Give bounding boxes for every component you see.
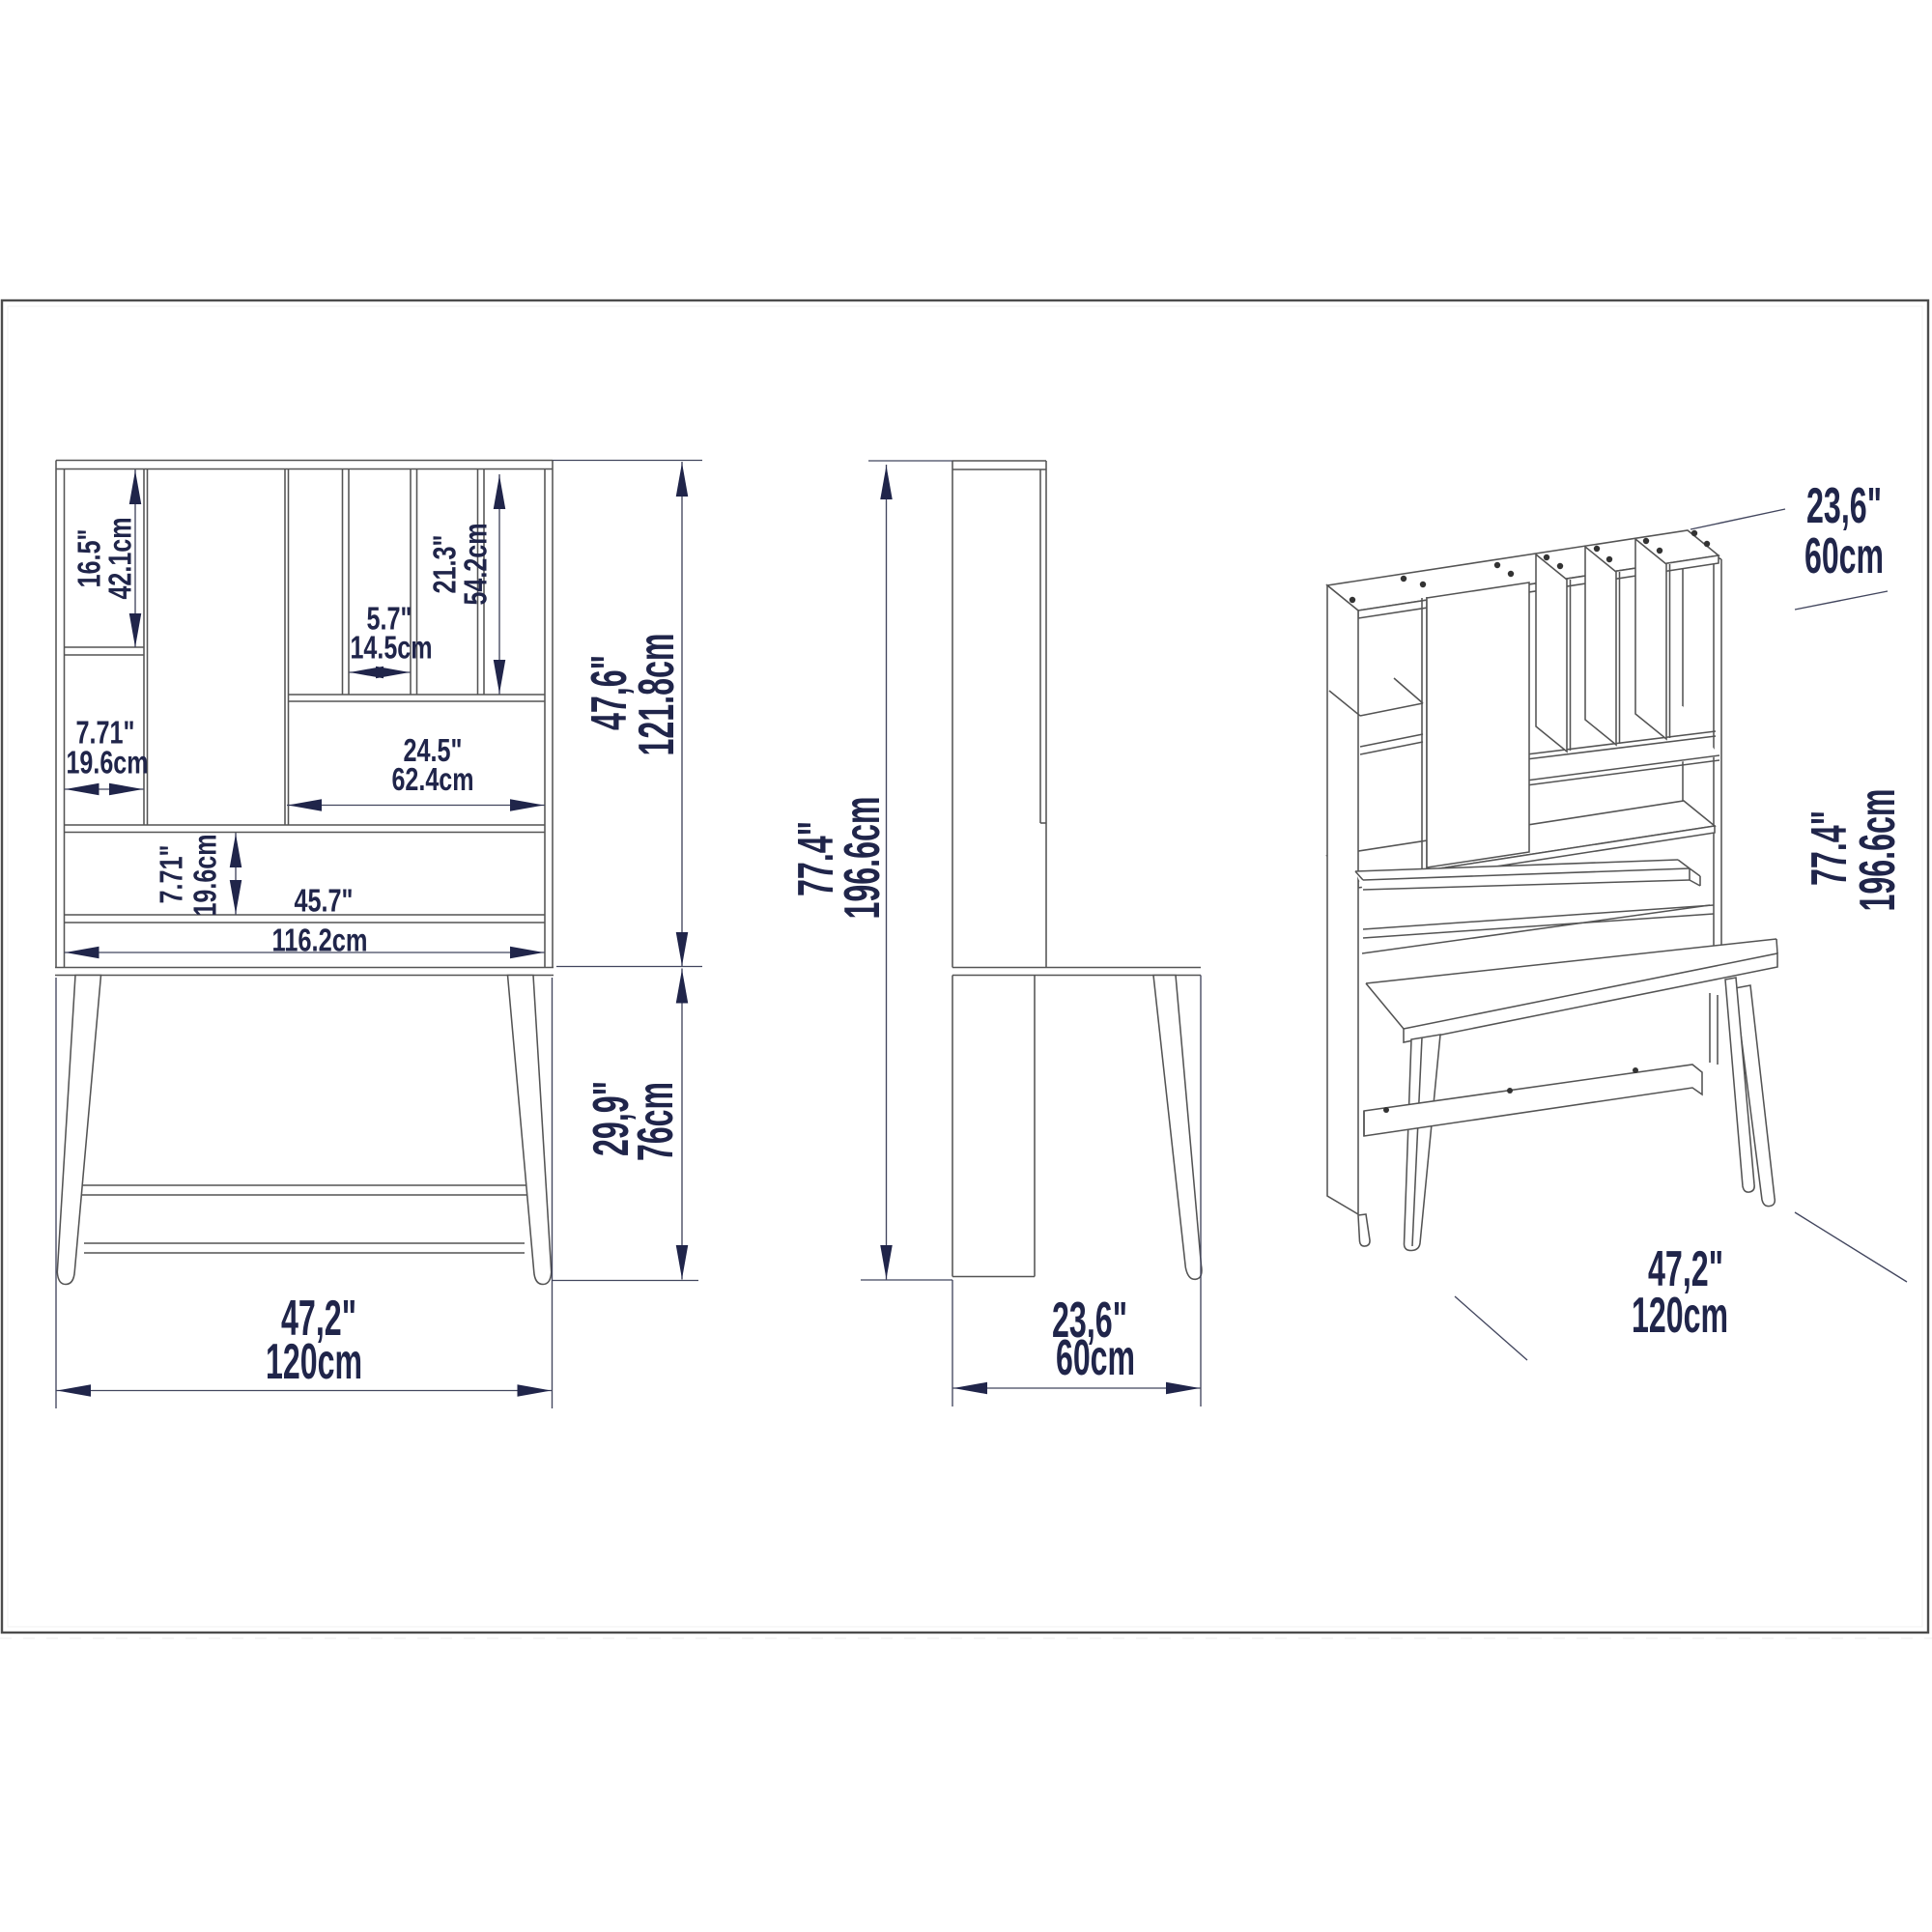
svg-text:19.6cm: 19.6cm: [187, 835, 223, 917]
svg-text:120cm: 120cm: [266, 1334, 362, 1390]
svg-text:62.4cm: 62.4cm: [392, 761, 474, 797]
svg-text:60cm: 60cm: [1804, 528, 1884, 584]
svg-text:45.7": 45.7": [295, 883, 354, 919]
svg-text:121.8cm: 121.8cm: [629, 634, 685, 756]
svg-text:54.2cm: 54.2cm: [458, 524, 494, 606]
svg-text:120cm: 120cm: [1632, 1288, 1728, 1344]
svg-text:196.6cm: 196.6cm: [1850, 789, 1906, 912]
svg-text:60cm: 60cm: [1056, 1330, 1135, 1386]
svg-text:7.71": 7.71": [154, 845, 189, 904]
svg-text:42.1cm: 42.1cm: [102, 518, 138, 600]
svg-text:196.6cm: 196.6cm: [835, 797, 891, 920]
svg-text:23,6": 23,6": [1806, 478, 1882, 534]
svg-text:76cm: 76cm: [628, 1082, 684, 1161]
svg-text:19.6cm: 19.6cm: [67, 745, 149, 781]
svg-text:14.5cm: 14.5cm: [351, 630, 433, 666]
svg-text:116.2cm: 116.2cm: [272, 923, 368, 958]
